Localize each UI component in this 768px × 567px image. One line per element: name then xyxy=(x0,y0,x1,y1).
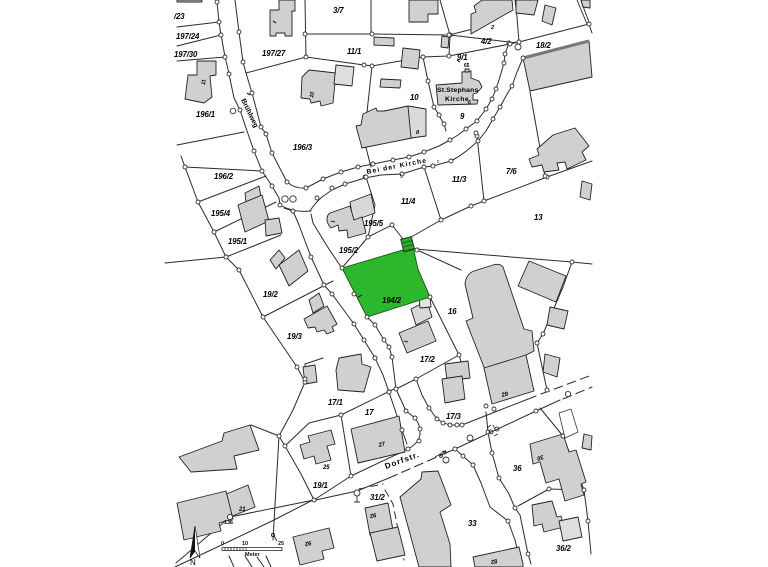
svg-text:Brühlweg: Brühlweg xyxy=(239,98,259,129)
svg-text:25: 25 xyxy=(278,541,284,547)
svg-text:36/2: 36/2 xyxy=(556,544,572,553)
svg-text:3/7: 3/7 xyxy=(333,6,344,15)
svg-text:19/2: 19/2 xyxy=(263,290,279,299)
svg-text:Bei der Kirche: Bei der Kirche xyxy=(366,157,428,176)
svg-text:136: 136 xyxy=(224,520,233,526)
svg-text:9: 9 xyxy=(460,112,465,121)
svg-text:10: 10 xyxy=(410,93,419,102)
svg-text:31/2: 31/2 xyxy=(370,493,386,502)
svg-text:Kirche: Kirche xyxy=(445,96,469,103)
svg-text:/23: /23 xyxy=(173,12,185,21)
svg-text:18/2: 18/2 xyxy=(536,41,552,50)
svg-text:10: 10 xyxy=(309,91,316,98)
svg-text:195/1: 195/1 xyxy=(228,237,247,246)
svg-text:196/1: 196/1 xyxy=(196,110,215,119)
svg-text:36: 36 xyxy=(513,464,522,473)
svg-text:197/24: 197/24 xyxy=(176,32,200,41)
svg-text:Meter: Meter xyxy=(245,552,261,558)
svg-text:195/2: 195/2 xyxy=(339,246,359,255)
svg-text:195/4: 195/4 xyxy=(211,209,231,218)
svg-text:6: 6 xyxy=(468,100,471,106)
svg-text:194/2: 194/2 xyxy=(382,296,402,305)
svg-text:11/4: 11/4 xyxy=(401,197,416,206)
svg-text:0: 0 xyxy=(221,541,224,547)
svg-text:196/2: 196/2 xyxy=(214,172,234,181)
svg-text:195/5: 195/5 xyxy=(364,219,384,228)
svg-text:196/3: 196/3 xyxy=(293,143,313,152)
svg-text:13: 13 xyxy=(534,213,543,222)
svg-text:197/30: 197/30 xyxy=(174,50,198,59)
svg-text:5: 5 xyxy=(400,174,403,180)
svg-text:16: 16 xyxy=(448,307,457,316)
svg-text:4/2: 4/2 xyxy=(480,37,492,46)
svg-text:19/3: 19/3 xyxy=(287,332,303,341)
svg-text:197/27: 197/27 xyxy=(262,49,286,58)
svg-text:25: 25 xyxy=(322,465,330,471)
svg-text:17: 17 xyxy=(365,408,374,417)
svg-text:11/1: 11/1 xyxy=(347,47,361,56)
svg-text:2: 2 xyxy=(490,25,494,31)
svg-text:33: 33 xyxy=(468,519,477,528)
svg-text:10: 10 xyxy=(242,541,248,547)
svg-text:17/1: 17/1 xyxy=(328,398,343,407)
svg-text:St.Stephans: St.Stephans xyxy=(437,87,478,94)
svg-text:65: 65 xyxy=(464,63,470,69)
svg-text:11/3: 11/3 xyxy=(452,175,467,184)
svg-text:21: 21 xyxy=(238,507,246,513)
svg-text:19/1: 19/1 xyxy=(313,481,328,490)
svg-text:17/2: 17/2 xyxy=(420,355,436,364)
svg-text:7/6: 7/6 xyxy=(506,167,517,176)
svg-text:N: N xyxy=(190,558,196,567)
svg-text:11: 11 xyxy=(201,79,207,85)
svg-text:17/3: 17/3 xyxy=(446,412,462,421)
